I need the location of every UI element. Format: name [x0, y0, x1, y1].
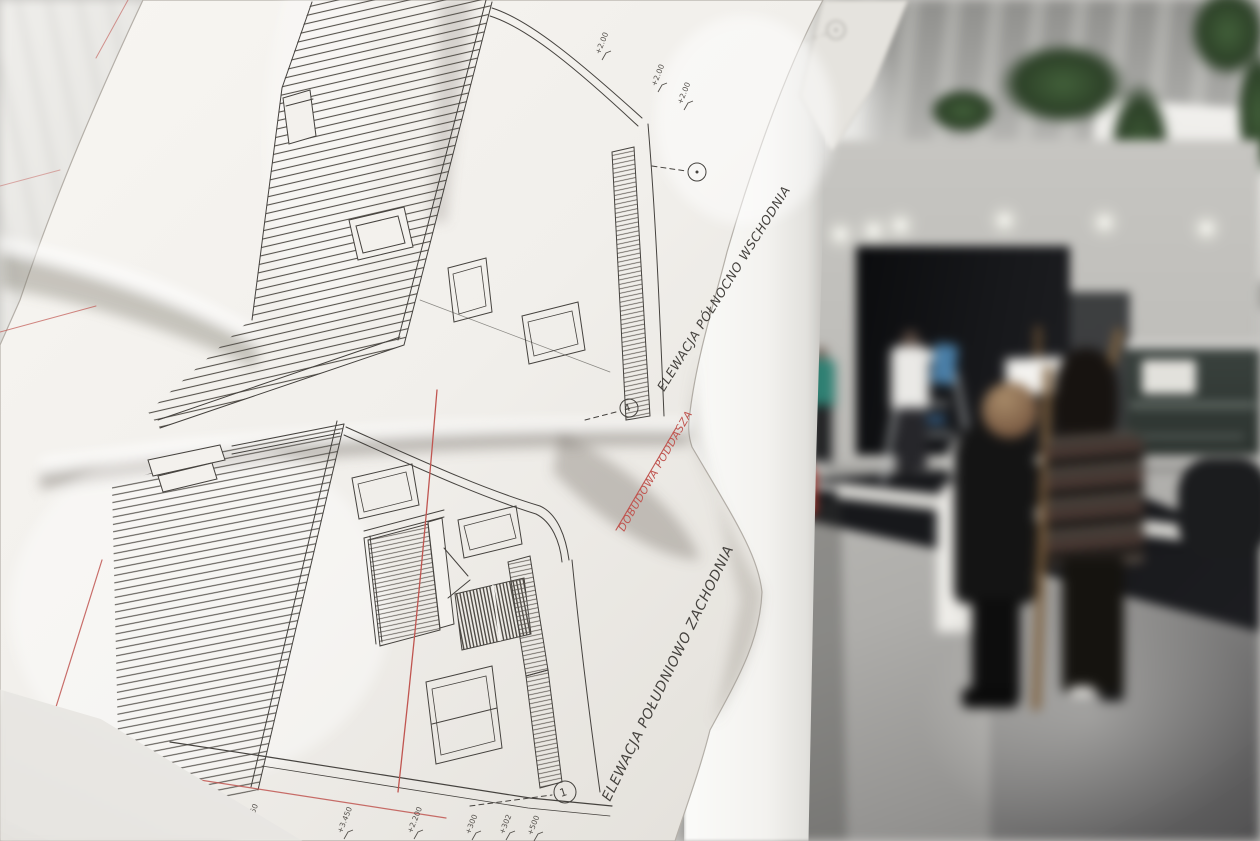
architectural-drawing-sheet: ELEWACJA PÓŁNOCNO WSCHODNIA ELEWACJA POŁ…: [0, 0, 1260, 841]
paper-sheet: ELEWACJA PÓŁNOCNO WSCHODNIA ELEWACJA POŁ…: [0, 0, 835, 841]
photo-architectural-drawing-in-gallery: ELEWACJA PÓŁNOCNO WSCHODNIA ELEWACJA POŁ…: [0, 0, 1260, 841]
